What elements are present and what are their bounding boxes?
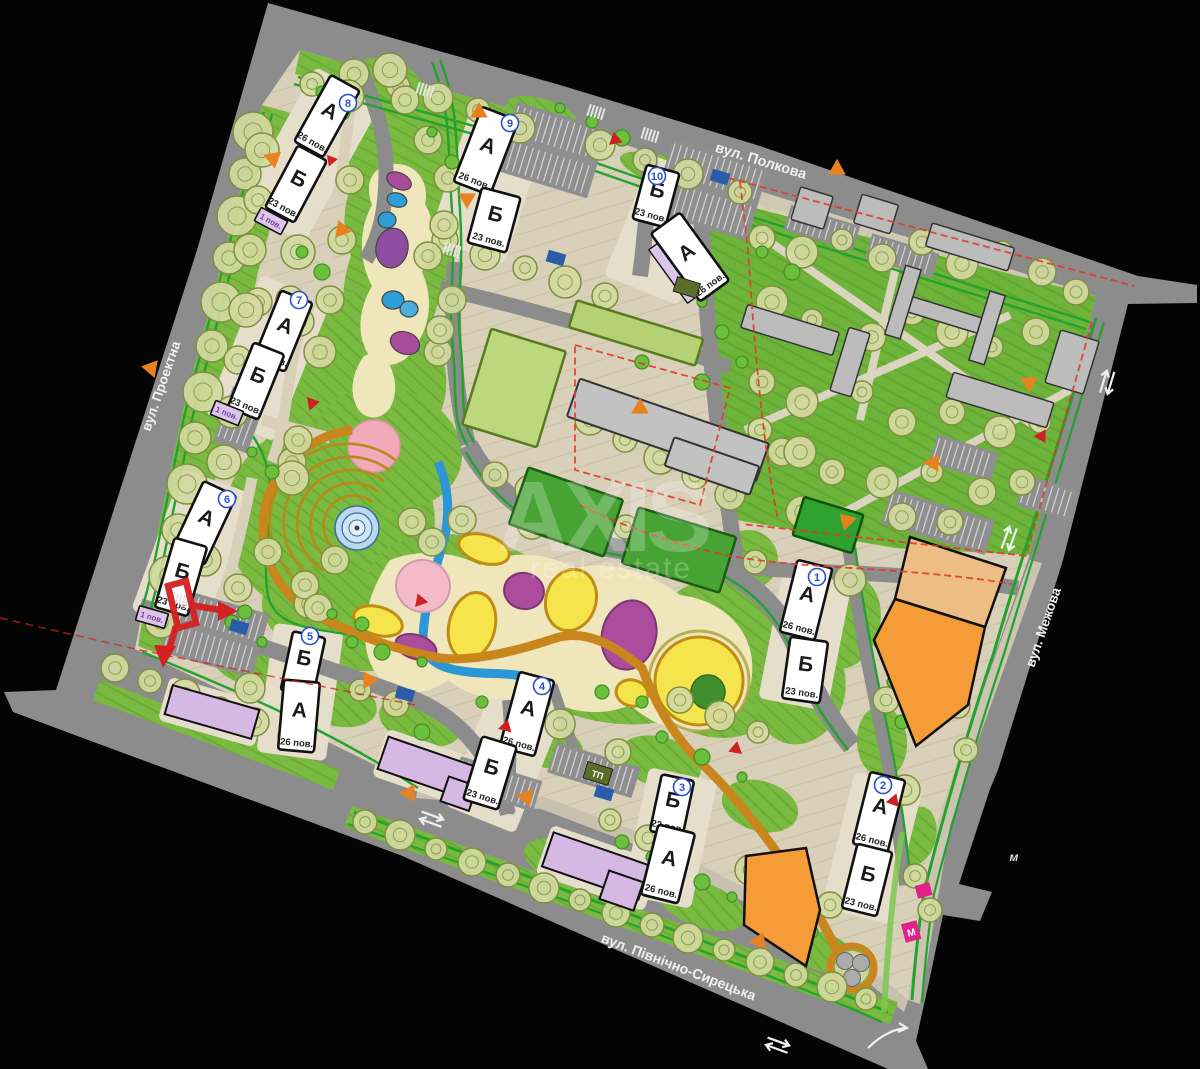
svg-text:9: 9: [507, 118, 513, 130]
svg-text:5: 5: [307, 631, 313, 643]
svg-text:8: 8: [345, 98, 351, 110]
svg-text:10: 10: [651, 171, 663, 183]
svg-text:А: А: [291, 698, 308, 722]
svg-text:3: 3: [679, 782, 685, 794]
svg-text:6: 6: [224, 494, 230, 506]
svg-text:7: 7: [296, 295, 302, 307]
svg-text:4: 4: [539, 681, 546, 693]
svg-text:1: 1: [814, 572, 820, 584]
svg-text:м: м: [1010, 850, 1019, 864]
svg-text:2: 2: [880, 780, 886, 792]
svg-text:Б: Б: [797, 652, 815, 677]
svg-text:real estate: real estate: [530, 552, 692, 585]
